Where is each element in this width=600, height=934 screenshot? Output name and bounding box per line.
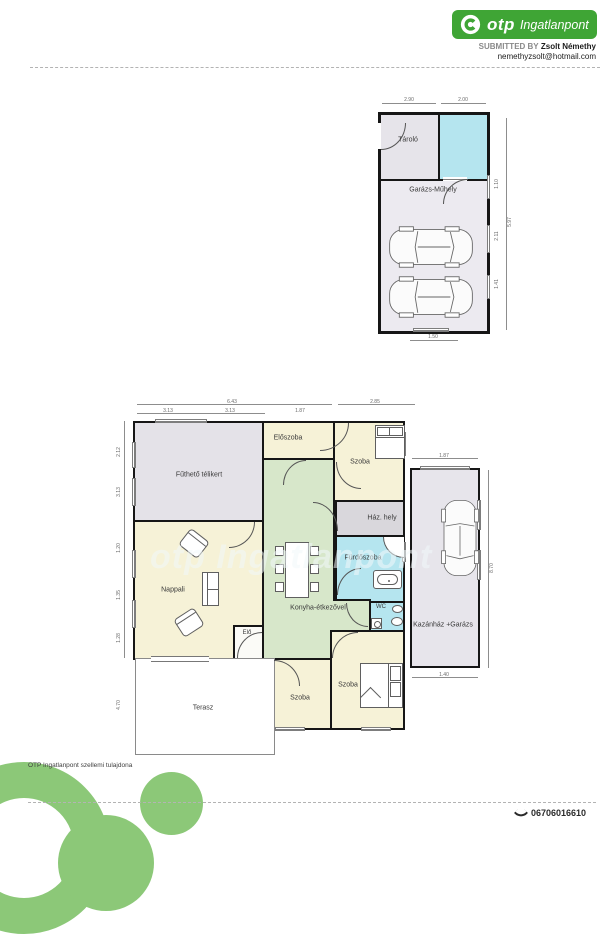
window-marker <box>132 478 136 506</box>
dim-line <box>441 103 486 104</box>
room-label: WC <box>376 604 386 610</box>
brand-suffix-text: Ingatlanpont <box>520 18 589 32</box>
submitter-email: nemethyzsolt@hotmail.com <box>498 52 596 61</box>
room-label: Szoba <box>338 682 358 689</box>
room-label: Kazánház +Garázs <box>413 622 473 629</box>
bed-double <box>360 663 403 708</box>
room-garage-cyan <box>440 115 487 181</box>
window-marker <box>361 727 391 731</box>
garage-plan <box>378 112 490 334</box>
chair <box>275 546 284 556</box>
main-plan: Fűthető télikert Előszoba Szoba Ház. hel… <box>133 400 513 760</box>
chair <box>310 546 319 556</box>
dim-text: 8.70 <box>489 563 495 573</box>
dim-line <box>137 413 265 414</box>
garage-door-opening <box>413 328 449 332</box>
dim-text: 2.12 <box>116 447 122 457</box>
sink <box>392 605 403 613</box>
car-top-view <box>387 275 475 319</box>
room-label: Előszoba <box>274 435 303 442</box>
otp-brand-badge: otp Ingatlanpont <box>452 10 597 39</box>
washing-machine <box>371 618 382 629</box>
window-marker <box>132 600 136 628</box>
window-marker <box>487 225 490 253</box>
room-label: Nappali <box>161 587 185 594</box>
window-marker <box>132 442 136 468</box>
garage-door-opening <box>420 466 470 470</box>
otp-logo-circle-large <box>58 815 154 911</box>
sofa <box>202 572 219 606</box>
dim-text: 1.10 <box>494 179 500 189</box>
dim-text: 1.50 <box>428 334 438 340</box>
submitted-by-label: SUBMITTED BY <box>479 42 539 51</box>
window-marker <box>132 550 136 578</box>
brand-otp-text: otp <box>487 15 515 35</box>
bed-double <box>375 425 405 459</box>
room-label: Szoba <box>350 459 370 466</box>
dim-text: 3.13 <box>116 487 122 497</box>
submitted-by-name: Zsolt Némethy <box>541 42 596 51</box>
dim-text: 1.41 <box>494 279 500 289</box>
phone-number: 06706016610 <box>531 808 586 818</box>
window-marker <box>275 727 305 731</box>
phone-icon <box>514 806 528 820</box>
submitted-by-line: SUBMITTED BY Zsolt Némethy <box>479 42 596 51</box>
chair <box>275 582 284 592</box>
phone-line: 06706016610 <box>516 808 586 818</box>
car-top-view <box>440 493 480 583</box>
toilet <box>391 617 403 626</box>
room-label-workshop: Garázs-Műhely <box>409 187 456 194</box>
chair <box>310 564 319 574</box>
otp-logo-icon <box>460 14 481 35</box>
dim-text: 3.13 <box>225 408 235 414</box>
otp-logo-circle-small <box>140 772 203 835</box>
bathtub <box>373 570 402 589</box>
dim-text: 1.87 <box>295 408 305 414</box>
top-divider <box>30 67 600 68</box>
dim-text: 2.85 <box>370 399 380 405</box>
dim-text: 1.40 <box>439 672 449 678</box>
room-label-storage: Tároló <box>398 137 418 144</box>
room-label: Ház. hely <box>367 515 396 522</box>
dim-text: 2.11 <box>494 231 500 240</box>
window-marker <box>487 175 490 199</box>
dim-text: 2.90 <box>404 97 414 103</box>
room-label: Fürdőszoba <box>345 555 382 562</box>
dim-text: 1.87 <box>439 453 449 459</box>
bottom-divider <box>28 802 596 803</box>
dim-line <box>124 421 125 658</box>
sliding-door <box>151 656 209 662</box>
window-marker <box>487 275 490 299</box>
window-marker <box>155 419 207 423</box>
dim-line <box>382 103 436 104</box>
dim-text: 3.13 <box>163 408 173 414</box>
dim-line <box>410 340 458 341</box>
room-label: Elő <box>243 630 252 636</box>
room-label: Fűthető télikert <box>176 472 222 479</box>
dim-text: 4.70 <box>116 700 122 710</box>
chair <box>275 564 284 574</box>
dim-text: 1.20 <box>116 543 122 553</box>
dim-text: 6.43 <box>227 399 237 405</box>
dining-table <box>285 542 309 598</box>
copyright-text: OTP Ingatlanpont szellemi tulajdona <box>28 762 132 769</box>
dim-text: 5.97 <box>507 217 513 227</box>
dim-text: 1.35 <box>116 590 122 600</box>
room-label: Terasz <box>193 705 214 712</box>
dim-text: 2.00 <box>458 97 468 103</box>
car-top-view <box>387 225 475 269</box>
room-label: Szoba <box>290 695 310 702</box>
dim-text: 1.28 <box>116 633 122 643</box>
chair <box>310 582 319 592</box>
room-label: Konyha-étkezővel <box>290 605 346 612</box>
